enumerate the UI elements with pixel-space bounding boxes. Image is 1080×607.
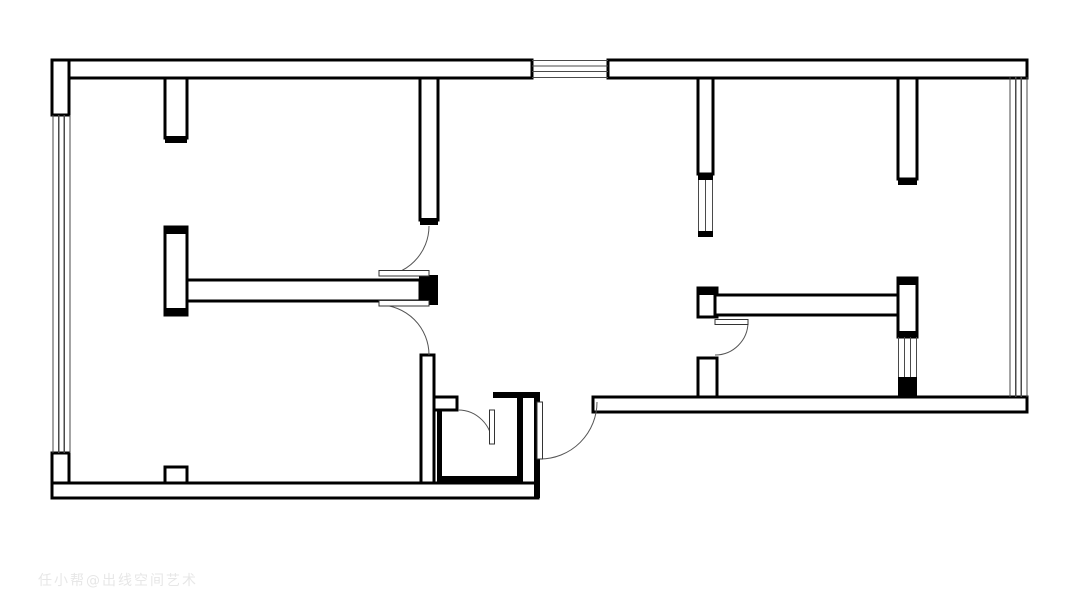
floor-plan-svg <box>0 0 1080 607</box>
wall-segment <box>52 483 538 498</box>
wall-segment <box>898 278 917 337</box>
wall-segment <box>165 78 187 138</box>
wall-segment-solid <box>698 288 717 295</box>
door-entrance-leaf <box>537 402 543 459</box>
wall-segment <box>715 295 902 315</box>
door-north-bedroom-leaf <box>379 271 429 277</box>
wall-segment-solid <box>898 179 917 185</box>
wall-segment <box>52 60 532 78</box>
wall-segment <box>434 397 457 410</box>
wall-segment-solid <box>437 410 442 483</box>
wall-segment-solid <box>420 218 438 225</box>
wall-segment <box>593 397 1027 412</box>
wall-segment-solid <box>165 308 187 315</box>
wall-segment-solid <box>493 392 540 398</box>
wall-segment <box>165 227 187 315</box>
wall-segment <box>898 78 917 179</box>
wall-segment-solid <box>698 174 713 180</box>
wall-segment-solid <box>437 476 523 483</box>
wall-segment <box>421 355 434 483</box>
wall-segment <box>698 78 713 174</box>
wall-segment <box>420 78 438 220</box>
wall-segment-solid <box>898 278 917 285</box>
wall-segment <box>52 60 69 115</box>
watermark-text: 任小帮@出线空间艺术 <box>38 570 198 590</box>
wall-segment-solid <box>898 331 917 337</box>
wall-segment-solid <box>898 377 917 397</box>
door-study-leaf <box>715 320 748 325</box>
wall-segment-solid <box>517 398 523 483</box>
wall-segment <box>187 280 420 301</box>
wall-segment-solid <box>165 227 187 234</box>
wall-segment-solid <box>698 231 713 237</box>
door-bathroom-leaf <box>490 410 495 444</box>
wall-segment <box>608 60 1027 78</box>
floor-plan-canvas: 任小帮@出线空间艺术 <box>0 0 1080 607</box>
wall-segment <box>165 467 187 483</box>
wall-segment-solid <box>165 136 187 143</box>
wall-segment <box>698 358 717 397</box>
door-living-room-leaf <box>379 301 429 307</box>
